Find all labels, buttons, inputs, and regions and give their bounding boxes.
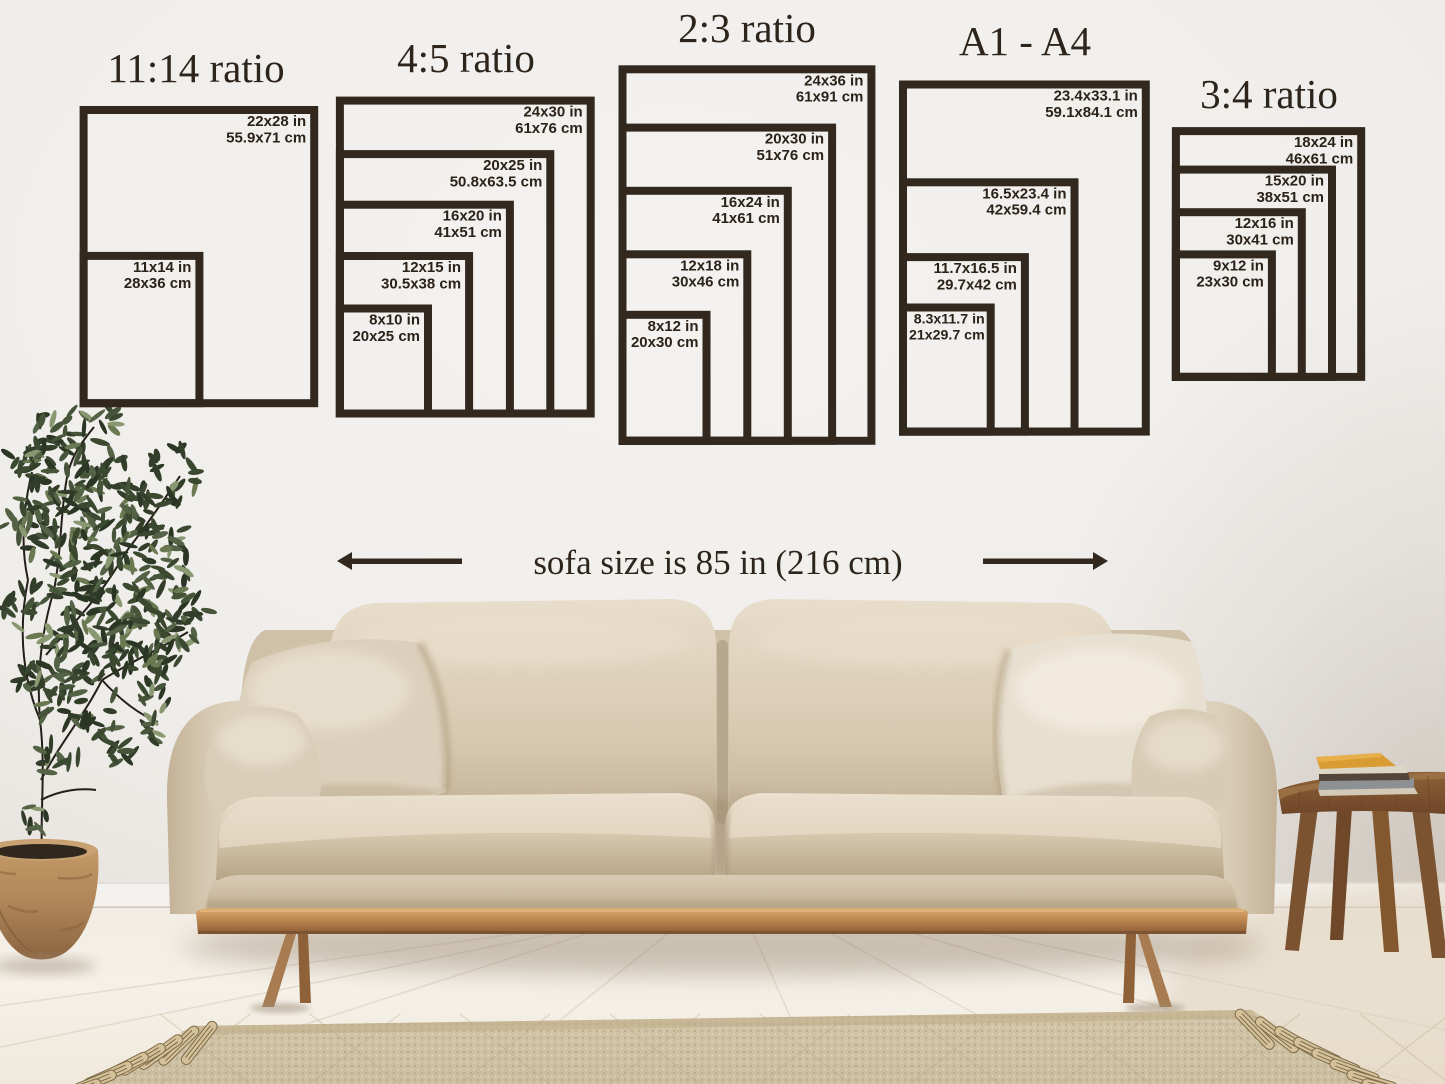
svg-text:11x14 in: 11x14 in xyxy=(133,259,191,276)
svg-text:24x36 in: 24x36 in xyxy=(804,72,863,89)
svg-text:8.3x11.7 in: 8.3x11.7 in xyxy=(914,312,985,328)
svg-text:29.7x42 cm: 29.7x42 cm xyxy=(937,276,1017,293)
svg-text:12x18 in: 12x18 in xyxy=(680,257,739,274)
svg-text:30x46 cm: 30x46 cm xyxy=(672,274,740,291)
svg-text:24x30 in: 24x30 in xyxy=(523,104,582,121)
svg-text:3:4 ratio: 3:4 ratio xyxy=(1200,71,1338,117)
svg-text:30.5x38 cm: 30.5x38 cm xyxy=(381,275,461,292)
svg-text:23x30 cm: 23x30 cm xyxy=(1196,274,1264,291)
svg-text:12x15 in: 12x15 in xyxy=(402,259,461,276)
svg-text:A1 - A4: A1 - A4 xyxy=(959,18,1091,64)
svg-text:55.9x71 cm: 55.9x71 cm xyxy=(226,129,306,146)
svg-text:15x20 in: 15x20 in xyxy=(1265,173,1324,190)
svg-text:18x24 in: 18x24 in xyxy=(1294,134,1353,151)
svg-text:22x28 in: 22x28 in xyxy=(247,113,306,130)
svg-text:8x12 in: 8x12 in xyxy=(648,318,699,335)
svg-text:8x10 in: 8x10 in xyxy=(369,312,420,329)
svg-text:20x25 in: 20x25 in xyxy=(483,157,542,174)
svg-text:46x61 cm: 46x61 cm xyxy=(1286,150,1354,167)
svg-text:16x24 in: 16x24 in xyxy=(721,194,780,211)
svg-text:38x51 cm: 38x51 cm xyxy=(1256,189,1324,206)
svg-text:4:5 ratio: 4:5 ratio xyxy=(397,35,535,81)
svg-text:20x25 cm: 20x25 cm xyxy=(352,328,420,345)
svg-text:16.5x23.4 in: 16.5x23.4 in xyxy=(982,185,1066,202)
svg-text:16x20 in: 16x20 in xyxy=(443,208,502,225)
svg-text:20x30 cm: 20x30 cm xyxy=(631,334,699,351)
svg-text:41x61 cm: 41x61 cm xyxy=(712,210,780,227)
svg-text:42x59.4 cm: 42x59.4 cm xyxy=(986,202,1066,219)
svg-text:9x12 in: 9x12 in xyxy=(1213,257,1264,274)
svg-text:20x30 in: 20x30 in xyxy=(765,131,824,148)
svg-text:23.4x33.1 in: 23.4x33.1 in xyxy=(1054,88,1138,105)
svg-text:61x91 cm: 61x91 cm xyxy=(796,89,864,106)
svg-text:41x51 cm: 41x51 cm xyxy=(434,224,502,241)
svg-text:11.7x16.5 in: 11.7x16.5 in xyxy=(933,260,1016,277)
svg-text:30x41 cm: 30x41 cm xyxy=(1226,232,1294,249)
svg-text:sofa size is 85 in (216 cm): sofa size is 85 in (216 cm) xyxy=(533,543,902,582)
svg-text:11:14 ratio: 11:14 ratio xyxy=(107,45,284,91)
svg-text:28x36 cm: 28x36 cm xyxy=(124,275,192,292)
svg-text:51x76 cm: 51x76 cm xyxy=(757,147,825,164)
svg-text:21x29.7 cm: 21x29.7 cm xyxy=(909,328,985,344)
svg-text:2:3 ratio: 2:3 ratio xyxy=(678,5,816,51)
svg-text:59.1x84.1 cm: 59.1x84.1 cm xyxy=(1045,104,1138,121)
svg-text:61x76 cm: 61x76 cm xyxy=(515,120,583,137)
svg-text:50.8x63.5 cm: 50.8x63.5 cm xyxy=(450,173,543,190)
svg-text:12x16 in: 12x16 in xyxy=(1235,215,1294,232)
